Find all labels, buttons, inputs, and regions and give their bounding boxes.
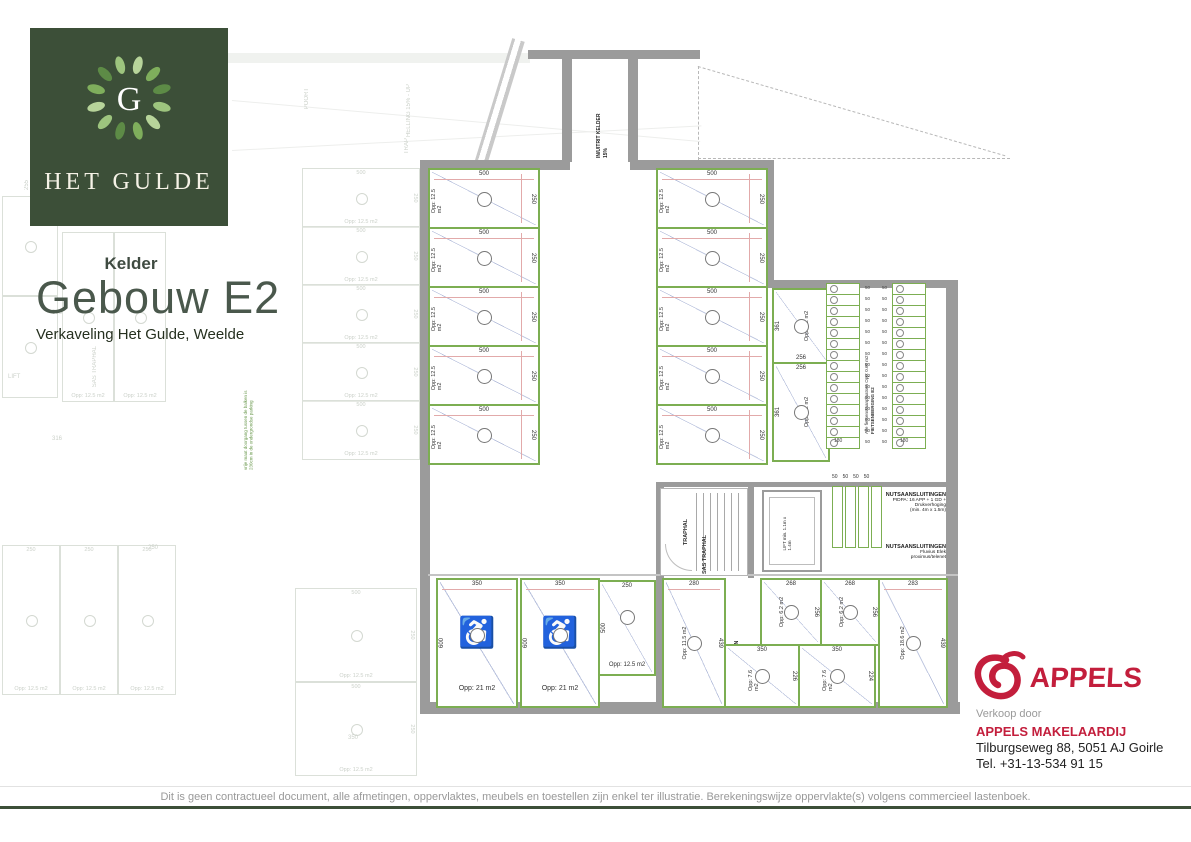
- storage-room: 283 439 Opp: 18.6 m2: [878, 578, 948, 708]
- faded-dim-side: 250: [409, 630, 415, 639]
- faded-area-label: Opp: 12.5 m2: [61, 686, 117, 692]
- dim-line: [442, 589, 512, 590]
- bike-stall: [858, 486, 869, 548]
- stall-bubble: [896, 340, 904, 348]
- page-subtitle: Verkaveling Het Gulde, Weelde: [36, 326, 244, 343]
- stall-bubble: [896, 406, 904, 414]
- dim-side: 600: [523, 638, 529, 648]
- faded-dim-side: 250: [412, 251, 418, 260]
- lift-label: LIFT min. 1.1m x 1.4m: [782, 512, 792, 551]
- dim-line: [434, 179, 534, 180]
- dim-side: 361: [775, 407, 781, 417]
- stall-bubble: [830, 384, 838, 392]
- diagonal-guide: [602, 584, 652, 672]
- parking-space: 500 250 Opp: 12.5 m2: [656, 404, 768, 465]
- bike-stall: [832, 486, 843, 548]
- logo-wordmark: Het Gulde: [30, 169, 228, 196]
- stall-bubble: [830, 329, 838, 337]
- dim-side: 361: [775, 321, 781, 331]
- handicap-parking-space: 350 600 ♿ Opp: 21 m2: [520, 578, 600, 708]
- bike-storage-note: Alle fietsenstaanplaatsen Opp: 0.60 m2 F…: [864, 286, 890, 434]
- faded-parking-cell: 250 Opp: 12.5 m2: [2, 545, 60, 695]
- area-label: Opp: 12.5 m2: [659, 420, 671, 449]
- utility-room-pidpa: NUTSAANSLUITINGEN PIDPA: 16 APP + 1 GD +…: [874, 492, 946, 513]
- dim-side: 226: [791, 671, 797, 681]
- clearance-note: vrije maat doorgang tussen de balken is …: [243, 388, 263, 470]
- dim-width: 500: [658, 407, 766, 413]
- stall-bubble: [830, 351, 838, 359]
- faded-area-label: Opp: 12.5 m2: [3, 686, 59, 692]
- faded-unit-bubble: [25, 241, 37, 253]
- door-arc: [665, 544, 692, 571]
- area-label: Opp: 12.5 m2: [431, 302, 443, 331]
- dim-depth: 250: [758, 193, 764, 203]
- dim-line: [884, 589, 942, 590]
- faded-unit-bubble: [26, 615, 38, 627]
- unit-bubble: [794, 405, 809, 420]
- dim-side: 256: [813, 607, 819, 617]
- dim-top: 350: [522, 581, 598, 587]
- parking-space: 500 250 Opp: 12.5 m2: [428, 404, 540, 465]
- dim-line: [662, 179, 762, 180]
- dim-depth: 250: [758, 252, 764, 262]
- dim-top: 283: [880, 581, 946, 587]
- area-label: Opp: 18.6 m2: [900, 626, 906, 659]
- dim-depth: 250: [530, 311, 536, 321]
- faded-unit-bubble: [356, 367, 368, 379]
- dim-label: 180: [834, 438, 842, 444]
- unit-bubble: [687, 636, 702, 651]
- utility-line: (min. 4m x 1.5m): [874, 508, 946, 513]
- parking-space: 500 250 Opp: 12.5 m2: [428, 168, 540, 229]
- bike-rack-column-right: 50 50 50 50 50: [892, 284, 926, 449]
- stall-bubble: [896, 373, 904, 381]
- faded-text-label: 350: [348, 735, 358, 741]
- parking-space: 500 250 Opp: 12.5 m2: [656, 345, 768, 406]
- dim-line: [526, 589, 594, 590]
- storage-room: 361 Opp: 9.2 m2 256: [772, 288, 830, 364]
- dim-line: [749, 292, 750, 341]
- dim-depth: 250: [758, 429, 764, 439]
- disclaimer-text: Dit is geen contractueel document, alle …: [0, 791, 1191, 803]
- faded-text-label: HELLING 15% - UP: [406, 84, 412, 137]
- agency-address: Tilburgseweg 88, 5051 AJ Goirle: [976, 740, 1163, 755]
- dim-top: 268: [822, 581, 878, 587]
- stall-bubble: [830, 296, 838, 304]
- unit-bubble: [906, 636, 921, 651]
- dim-line: [749, 410, 750, 459]
- dim-width: 500: [430, 230, 538, 236]
- faded-dim-top: 250: [3, 547, 59, 553]
- dim-line: [521, 351, 522, 400]
- dim-top: 250: [600, 583, 654, 589]
- parking-space: 500 250 Opp: 12.5 m2: [428, 345, 540, 406]
- faded-parking-cell: 500 250 Opp: 12.5 m2: [295, 588, 417, 682]
- dim-width: 500: [658, 289, 766, 295]
- faded-dim-top: 500: [303, 228, 419, 234]
- area-label: Opp: 12.5 m2: [431, 184, 443, 213]
- dim-width: 500: [430, 289, 538, 295]
- dim-line: [662, 415, 762, 416]
- entry-label-text: IN/UITRIT KELDER: [596, 74, 602, 158]
- stall-bubble: [896, 362, 904, 370]
- faded-parking-cell: 500 250 Opp: 12.5 m2: [302, 342, 420, 402]
- faded-unit-bubble: [351, 630, 363, 642]
- utility-room-fluvius: NUTSAANSLUITINGEN Fluvius Elek proximus/…: [874, 544, 946, 560]
- unit-bubble: [705, 369, 720, 384]
- area-label: Opp: 12.5 m2: [659, 184, 671, 213]
- stall-bubble: [830, 362, 838, 370]
- dim-depth: 250: [530, 193, 536, 203]
- entry-label: IN/UITRIT KELDER 15%: [596, 74, 609, 158]
- sas-label: SAS TRAPHAL: [702, 528, 708, 574]
- faded-area-label: Opp: 12.5 m2: [303, 219, 419, 225]
- faded-dim-top: 500: [303, 286, 419, 292]
- unit-bubble: [477, 310, 492, 325]
- faded-dim-top: 500: [296, 590, 416, 596]
- unit-bubble: [830, 669, 845, 684]
- faded-parking-cell: 250 Opp: 12.5 m2: [60, 545, 118, 695]
- faded-unit-bubble: [356, 193, 368, 205]
- area-label: Opp: 12.5 m2: [431, 420, 443, 449]
- storage-room: 350 226 Opp: 7.6 m2: [724, 644, 800, 708]
- area-label: Opp: 12.5 m2: [431, 243, 443, 272]
- stall-bubble: [896, 307, 904, 315]
- faded-parking-cell: 500 250 Opp: 12.5 m2: [302, 284, 420, 344]
- faded-unit-bubble: [356, 251, 368, 263]
- stall-dim: 50: [882, 439, 887, 444]
- dim-depth: 250: [530, 370, 536, 380]
- leaf-wreath-icon: G: [81, 50, 177, 146]
- dim-side: 439: [939, 638, 945, 648]
- dim-line: [662, 238, 762, 239]
- lift-car: [769, 497, 815, 565]
- parking-column-left: 500 250 Opp: 12.5 m2 500 250 Opp: 12.5 m…: [428, 170, 540, 465]
- area-label: Opp: 12.5 m2: [431, 361, 443, 390]
- faded-area-label: Opp: 12.5 m2: [63, 393, 113, 399]
- faded-area-label: Opp: 12.5 m2: [115, 393, 165, 399]
- dim-side: 600: [439, 638, 445, 648]
- dim-width: 500: [658, 348, 766, 354]
- area-label: Opp: 21 m2: [438, 685, 516, 692]
- unit-bubble: [477, 192, 492, 207]
- stall-dim: 50: [832, 474, 838, 480]
- dim-line: [521, 174, 522, 223]
- stall-bubble: [896, 395, 904, 403]
- bike-storage-title: FIETSENBERGING E2: [870, 286, 876, 434]
- footer-rule: [0, 806, 1191, 809]
- entry-slope-text: 15%: [603, 74, 609, 158]
- utility-line: PIDPA: 16 APP + 1 GD + Drukverhoging: [874, 498, 946, 508]
- faded-area-label: Opp: 12.5 m2: [119, 686, 175, 692]
- faded-dim-top: 250: [119, 547, 175, 553]
- dim-depth: 250: [530, 252, 536, 262]
- dim-depth: 250: [530, 429, 536, 439]
- faded-text-label: 250: [148, 545, 158, 551]
- dim-line: [749, 174, 750, 223]
- stall-bubble: [896, 428, 904, 436]
- dim-width: 500: [430, 171, 538, 177]
- area-label: Opp: 12.5 m2: [659, 361, 671, 390]
- dim-top: 350: [726, 647, 798, 653]
- parking-space: 250 500 Opp: 12.5 m2: [598, 580, 656, 676]
- unit-bubble: [705, 192, 720, 207]
- faded-unit-bubble: [84, 615, 96, 627]
- parking-column-right: 500 250 Opp: 12.5 m2 500 250 Opp: 12.5 m…: [656, 170, 768, 465]
- unit-bubble: [755, 669, 770, 684]
- area-label: Opp: 12.5 m2: [659, 243, 671, 272]
- faded-unit-bubble: [356, 425, 368, 437]
- agency-phone: Tel. +31-13-534 91 15: [976, 756, 1103, 771]
- stall-bubble: [830, 307, 838, 315]
- unit-bubble: [705, 251, 720, 266]
- stairwell-label: TRAPHAL: [683, 519, 689, 545]
- dim-line: [521, 292, 522, 341]
- bike-stall: 50: [892, 437, 926, 449]
- stall-bubble: [830, 373, 838, 381]
- divider: [0, 786, 1191, 787]
- dim-line: [434, 238, 534, 239]
- dim-top: 350: [438, 581, 516, 587]
- faded-area-label: Opp: 12.5 m2: [303, 277, 419, 283]
- parking-space: 500 250 Opp: 12.5 m2: [656, 227, 768, 288]
- dim-top: 256: [774, 365, 828, 371]
- stall-dim: 50: [864, 474, 870, 480]
- parking-space: 500 250 Opp: 12.5 m2: [428, 286, 540, 347]
- dim-label: 180: [900, 438, 908, 444]
- stall-bubble: [830, 285, 838, 293]
- wall-segment: [656, 482, 954, 487]
- stall-bubble: [830, 395, 838, 403]
- storage-room: 268 256 Opp: 6.2 m2: [820, 578, 880, 646]
- storage-room: 280 439 Opp: 11.5 m2: [662, 578, 726, 708]
- dim-line: [521, 410, 522, 459]
- faded-dim-side: 250: [412, 425, 418, 434]
- unit-bubble: [477, 428, 492, 443]
- faded-area-label: Opp: 12.5 m2: [296, 767, 416, 773]
- lift-shaft: LIFT min. 1.1m x 1.4m: [762, 490, 822, 572]
- dim-depth: 250: [758, 311, 764, 321]
- stall-bubble: [896, 351, 904, 359]
- unit-bubble: [794, 319, 809, 334]
- faded-unit-bubble: [25, 342, 37, 354]
- handicap-parking-space: 350 600 ♿ Opp: 21 m2: [436, 578, 518, 708]
- faded-area-label: Opp: 12.5 m2: [303, 393, 419, 399]
- unit-bubble: [784, 605, 799, 620]
- dim-line: [434, 415, 534, 416]
- logo-monogram: G: [117, 81, 142, 118]
- area-label: Opp: 12.5 m2: [659, 302, 671, 331]
- faded-text-label: LIFT: [8, 374, 20, 380]
- dim-line: [521, 233, 522, 282]
- dim-top: 350: [800, 647, 874, 653]
- dim-top: 280: [664, 581, 724, 587]
- stall-bubble: [830, 428, 838, 436]
- stall-bubble: [830, 340, 838, 348]
- wall-segment: [748, 482, 754, 578]
- dim-side: 439: [717, 638, 723, 648]
- utility-line: proximus/telenet: [874, 555, 946, 560]
- wall-segment: [628, 56, 638, 162]
- storage-room: 268 256 Opp: 6.2 m2: [760, 578, 822, 646]
- unit-bubble: [477, 251, 492, 266]
- dim-side: 500: [601, 623, 607, 633]
- stall-bubble: [896, 329, 904, 337]
- dim-width: 500: [430, 348, 538, 354]
- ramp-dashed-edge: [698, 158, 1010, 159]
- faded-parking-cell: 250 Opp: 12.5 m2: [118, 545, 176, 695]
- appels-wordmark: APPELS: [1029, 662, 1143, 694]
- het-gulde-logo: G Het Gulde: [30, 28, 228, 226]
- dim-line: [662, 356, 762, 357]
- dim-side: 224: [867, 671, 873, 681]
- parking-space: 500 250 Opp: 12.5 m2: [428, 227, 540, 288]
- stall-bubble: [896, 318, 904, 326]
- dim-line: [434, 356, 534, 357]
- dim-line: [749, 351, 750, 400]
- faded-unit-bubble: [356, 309, 368, 321]
- dim-top: 268: [762, 581, 820, 587]
- parking-space: 500 250 Opp: 12.5 m2: [656, 168, 768, 229]
- parking-space: 500 250 Opp: 12.5 m2: [656, 286, 768, 347]
- stall-bubble: [896, 296, 904, 304]
- dim-side: 256: [871, 607, 877, 617]
- faded-text-label: POORT: [304, 88, 310, 109]
- page: Opp: 12.5 m2 Opp: 12.5 m2 500 250 Opp: 1…: [0, 0, 1191, 842]
- faded-dim-top: 500: [303, 344, 419, 350]
- unit-bubble: [705, 310, 720, 325]
- dim-line: [662, 297, 762, 298]
- dim-line: [668, 589, 720, 590]
- faded-dim-side: 250: [412, 309, 418, 318]
- storage-room: 350 224 Opp: 7.6 m2: [798, 644, 876, 708]
- stall-bubble: [830, 406, 838, 414]
- faded-dim-side: 250: [412, 193, 418, 202]
- faded-area-label: Opp: 12.5 m2: [303, 335, 419, 341]
- stall-bubble: [896, 417, 904, 425]
- unit-bubble: [620, 610, 635, 625]
- bike-stall: 50: [826, 437, 860, 449]
- dim-line: [434, 297, 534, 298]
- faded-area-label: Opp: 12.5 m2: [296, 673, 416, 679]
- faded-dim-top: 500: [303, 402, 419, 408]
- area-label: Opp: 12.5 m2: [600, 662, 654, 668]
- stall-dim: 50: [865, 439, 870, 444]
- faded-parking-cell: 500 250 Opp: 12.5 m2: [302, 226, 420, 286]
- faded-dim-top: 500: [303, 170, 419, 176]
- faded-parking-cell: 500 250 Opp: 12.5 m2: [295, 682, 417, 776]
- stall-bubble: [896, 285, 904, 293]
- page-title: Gebouw E2: [36, 272, 280, 324]
- stall-dim: 50: [843, 474, 849, 480]
- stall-dims-row: 50505050: [832, 474, 869, 480]
- dim-width: 500: [430, 407, 538, 413]
- dim-width: 500: [658, 230, 766, 236]
- faded-dim-side: 250: [409, 724, 415, 733]
- bike-rack-column-left: 50 50 50 50 50: [826, 284, 860, 449]
- stall-bubble: [830, 318, 838, 326]
- faded-parking-cell: 500 250 Opp: 12.5 m2: [302, 168, 420, 228]
- stall-dim: 50: [853, 474, 859, 480]
- wall-segment: [528, 50, 700, 59]
- unit-bubble: [843, 605, 858, 620]
- faded-text-label: SAS TRAPHAL: [92, 346, 98, 387]
- bike-note-text: Alle fietsenstaanplaatsen Opp: 0.60 m2: [864, 286, 870, 434]
- ramp-dashed-edge: [698, 66, 699, 160]
- faded-text-label: 316: [52, 436, 62, 442]
- faded-area-label: Opp: 12.5 m2: [303, 451, 419, 457]
- faded-unit-bubble: [142, 615, 154, 627]
- faded-dim-top: 250: [61, 547, 117, 553]
- dim-line: [749, 233, 750, 282]
- unit-bubble: [705, 428, 720, 443]
- dim-width: 500: [658, 171, 766, 177]
- unit-bubble: [477, 369, 492, 384]
- bike-stall: [845, 486, 856, 548]
- area-label: Opp: 21 m2: [522, 685, 598, 692]
- wall-segment: [562, 56, 572, 162]
- stall-bubble: [896, 384, 904, 392]
- faded-text-label: TRAP: [404, 138, 410, 154]
- agency-intro: Verkoop door: [976, 708, 1041, 720]
- agency-name: APPELS MAKELAARDIJ: [976, 724, 1126, 739]
- floor-label: Kelder: [36, 254, 226, 274]
- faded-wall: [228, 53, 530, 63]
- stall-bubble: [830, 417, 838, 425]
- storage-room: 256 361 Opp: 9.2 m2: [772, 362, 830, 462]
- faded-parking-cell: 500 250 Opp: 12.5 m2: [302, 400, 420, 460]
- dim-depth: 250: [758, 370, 764, 380]
- faded-dim-side: 250: [412, 367, 418, 376]
- faded-dim-top: 500: [296, 684, 416, 690]
